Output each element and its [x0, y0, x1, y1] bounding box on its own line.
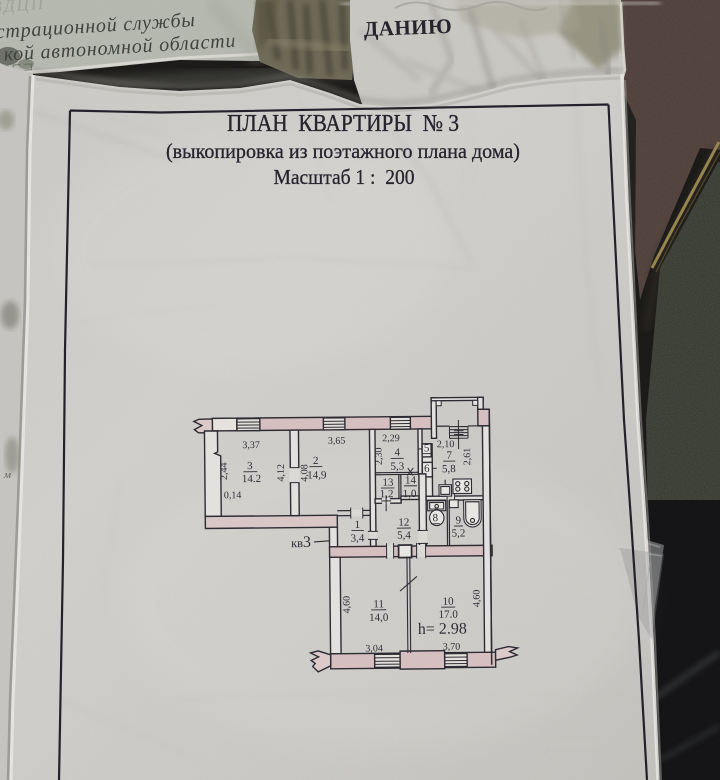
svg-text:2: 2 [313, 455, 319, 467]
svg-text:7: 7 [446, 450, 452, 462]
svg-text:14,0: 14,0 [369, 612, 389, 624]
svg-text:14: 14 [405, 474, 417, 486]
svg-text:11: 11 [373, 598, 384, 610]
svg-text:8: 8 [432, 512, 438, 524]
svg-text:1,0: 1,0 [403, 488, 417, 500]
svg-text:13: 13 [382, 477, 394, 489]
svg-text:1: 1 [355, 519, 361, 531]
svg-text:h= 2.98: h= 2.98 [418, 620, 467, 637]
svg-text:(выкопировка из поэтажного пла: (выкопировка из поэтажного плана дома) [166, 139, 520, 163]
svg-text:4,60: 4,60 [342, 596, 353, 614]
svg-text:3,4: 3,4 [351, 532, 365, 544]
svg-text:3,65: 3,65 [328, 436, 346, 447]
svg-text:2,44: 2,44 [219, 462, 230, 480]
svg-text:м: м [3, 469, 11, 481]
svg-text:14.2: 14.2 [242, 473, 261, 485]
svg-text:5,2: 5,2 [452, 527, 466, 539]
svg-text:5,8: 5,8 [442, 463, 456, 475]
svg-text:3,04: 3,04 [365, 643, 383, 654]
svg-text:2,61: 2,61 [462, 448, 473, 466]
svg-text:1,2: 1,2 [380, 488, 394, 500]
svg-text:5,3: 5,3 [390, 461, 404, 473]
svg-text:6: 6 [424, 463, 430, 475]
svg-text:ПЛАН КВАРТИРЫ № 3: ПЛАН КВАРТИРЫ № 3 [227, 111, 459, 137]
svg-text:3,37: 3,37 [242, 440, 260, 451]
svg-text:0,14: 0,14 [224, 490, 242, 501]
svg-text:ДАНИЮ: ДАНИЮ [363, 14, 452, 41]
svg-text:4,60: 4,60 [471, 590, 482, 608]
svg-text:9: 9 [456, 515, 462, 527]
svg-text:10: 10 [443, 596, 455, 608]
svg-text:кв3: кв3 [291, 534, 311, 551]
svg-text:2,10: 2,10 [437, 439, 455, 450]
svg-text:4,12: 4,12 [276, 464, 287, 482]
svg-text:4: 4 [394, 447, 400, 459]
svg-text:12: 12 [398, 517, 409, 529]
svg-text:2,29: 2,29 [382, 433, 400, 444]
svg-text:Масштаб 1 : 200: Масштаб 1 : 200 [274, 165, 415, 189]
svg-text:3,70: 3,70 [443, 642, 461, 653]
svg-text:17.0: 17.0 [439, 609, 459, 621]
svg-text:3: 3 [247, 460, 253, 472]
svg-text:5,4: 5,4 [397, 530, 411, 542]
svg-text:2,30: 2,30 [374, 448, 385, 466]
svg-text:5: 5 [424, 442, 430, 454]
svg-text:4,08: 4,08 [299, 464, 310, 482]
